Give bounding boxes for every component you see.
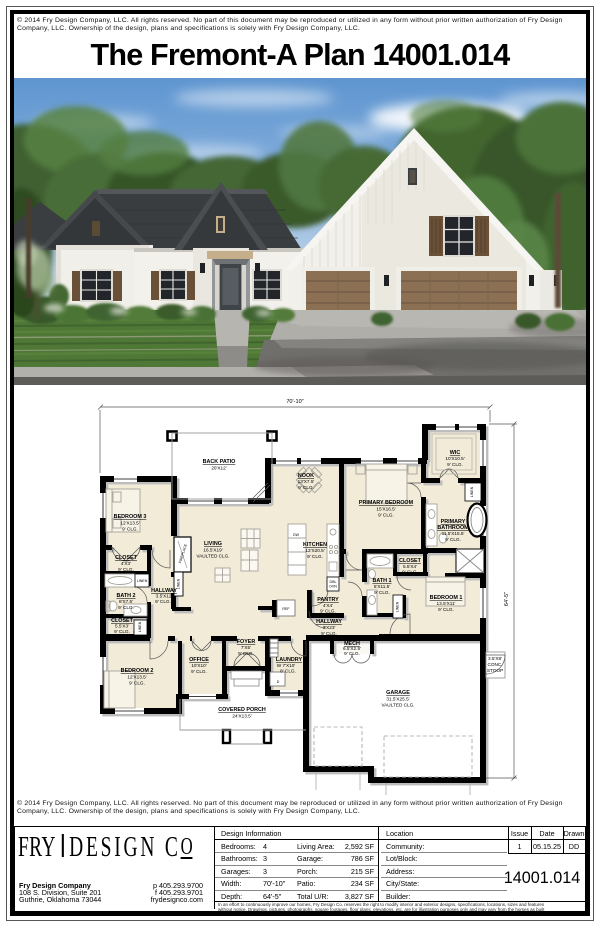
svg-text:9' CLG.: 9' CLG. (321, 631, 337, 636)
svg-text:BACK PATIO: BACK PATIO (203, 459, 236, 465)
svg-text:12'X20.5': 12'X20.5' (305, 548, 324, 553)
svg-text:7'X5': 7'X5' (241, 645, 251, 650)
svg-text:CONC.: CONC. (487, 662, 502, 667)
svg-text:64'-5": 64'-5" (504, 592, 510, 606)
svg-text:10'X10': 10'X10' (191, 663, 206, 668)
svg-text:D: D (277, 680, 280, 684)
svg-text:5.5'X4': 5.5'X4' (403, 564, 417, 569)
svg-text:LINEN: LINEN (137, 579, 148, 583)
svg-text:W 7'X10': W 7'X10' (277, 663, 296, 668)
svg-text:16.5'X19': 16.5'X19' (203, 548, 222, 553)
svg-text:3'X23': 3'X23' (323, 625, 336, 630)
svg-text:31.5'X25.5': 31.5'X25.5' (386, 697, 409, 702)
svg-text:DBL: DBL (330, 580, 337, 584)
svg-text:9' CLG.: 9' CLG. (114, 629, 130, 634)
svg-text:9' CLG.: 9' CLG. (445, 537, 461, 542)
svg-text:9' CLG.: 9' CLG. (238, 651, 254, 656)
svg-text:9' CLG.: 9' CLG. (118, 605, 134, 610)
svg-text:BEDROOM 2: BEDROOM 2 (121, 668, 154, 674)
svg-text:DW: DW (293, 533, 300, 537)
svg-text:9' CLG.: 9' CLG. (344, 651, 360, 656)
svg-text:10'X10.5': 10'X10.5' (445, 456, 464, 461)
svg-text:12'X13.5': 12'X13.5' (120, 521, 139, 526)
svg-text:LINEN: LINEN (177, 578, 181, 589)
svg-text:OVN: OVN (329, 585, 337, 589)
svg-text:5'X11.5': 5'X11.5' (374, 584, 390, 589)
svg-text:9' CLG.: 9' CLG. (320, 609, 336, 614)
svg-text:LIVING: LIVING (204, 541, 222, 547)
svg-text:COVERED PORCH: COVERED PORCH (218, 707, 266, 713)
svg-text:LINEN: LINEN (138, 621, 142, 632)
svg-text:15'X16.5': 15'X16.5' (376, 507, 395, 512)
svg-text:PRIMARY BEDROOM: PRIMARY BEDROOM (359, 500, 414, 506)
svg-text:12'X13.5': 12'X13.5' (127, 675, 146, 680)
svg-text:3.5'X12': 3.5'X12' (156, 594, 173, 599)
svg-text:11.5'X15.5': 11.5'X15.5' (442, 531, 465, 536)
svg-text:VAULTED CLG.: VAULTED CLG. (196, 554, 229, 559)
svg-text:9' CLG.: 9' CLG. (155, 599, 171, 604)
svg-text:VAULTED CLG.: VAULTED CLG. (381, 703, 414, 708)
svg-text:LINEN: LINEN (396, 601, 400, 612)
svg-text:13.5'X11': 13.5'X11' (437, 601, 456, 606)
svg-text:4'X4': 4'X4' (323, 603, 333, 608)
svg-text:9' CLG.: 9' CLG. (118, 567, 134, 572)
svg-text:8' CLG.: 8' CLG. (280, 669, 296, 674)
svg-text:9' CLG.: 9' CLG. (378, 513, 394, 518)
svg-text:9' CLG.: 9' CLG. (447, 462, 463, 467)
svg-text:70'-10": 70'-10" (286, 399, 303, 405)
svg-text:4'X3': 4'X3' (121, 561, 131, 566)
svg-text:9' CLG.: 9' CLG. (298, 485, 314, 490)
svg-text:BEDROOM 3: BEDROOM 3 (114, 514, 147, 520)
svg-text:3.5'X8': 3.5'X8' (488, 656, 502, 661)
svg-text:GARAGE: GARAGE (386, 690, 410, 696)
svg-text:8'X7.5': 8'X7.5' (119, 599, 133, 604)
svg-text:REF: REF (282, 607, 290, 611)
svg-text:9' CLG.: 9' CLG. (402, 570, 418, 575)
svg-text:LINEN: LINEN (470, 486, 474, 497)
svg-text:20'X12': 20'X12' (211, 466, 226, 471)
svg-text:9' CLG.: 9' CLG. (374, 590, 390, 595)
svg-text:9' CLG.: 9' CLG. (438, 607, 454, 612)
svg-text:9' CLG.: 9' CLG. (307, 554, 323, 559)
svg-text:5.5'X3': 5.5'X3' (115, 624, 129, 629)
svg-text:24'X13.5': 24'X13.5' (232, 714, 251, 719)
svg-text:9' CLG.: 9' CLG. (191, 669, 207, 674)
svg-text:STOOP: STOOP (487, 668, 503, 673)
svg-text:9' CLG.: 9' CLG. (129, 681, 145, 686)
svg-text:13'X7.5': 13'X7.5' (298, 479, 315, 484)
svg-text:9' CLG.: 9' CLG. (122, 527, 138, 532)
